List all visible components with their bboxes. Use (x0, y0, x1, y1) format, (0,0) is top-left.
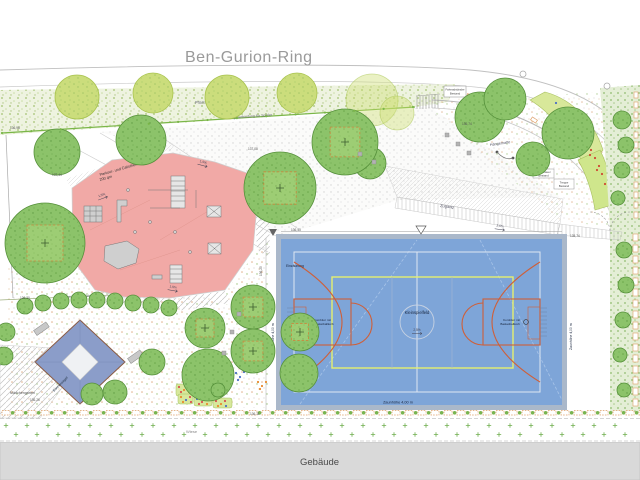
building-label: Gebäude (300, 457, 339, 468)
elevation-label: 137,44 (52, 173, 62, 177)
elevation-label: 136,30 (20, 296, 30, 300)
enclosure-label: Einzäunung (286, 264, 304, 268)
lawn-label: Wiese (186, 429, 198, 434)
svg-text:Bestand: Bestand (559, 184, 570, 188)
site-plan-canvas: Ben-Gurion-Ring Pflanzung Bestand Wegeve… (0, 0, 640, 480)
site-plan-svg: Ben-Gurion-Ring Pflanzung Bestand Wegeve… (0, 0, 640, 480)
girls-garden-label: Mädchengarten (10, 391, 35, 395)
bush (613, 111, 631, 129)
tree-new (231, 329, 275, 373)
bush (615, 312, 631, 328)
fence-label-bottom: Zaunhöhe 4,00 m (383, 401, 413, 405)
stairs-note-box: Treppe Bestand (554, 179, 574, 189)
bike-rack-label-2: Bestand (450, 91, 461, 95)
svg-text:2,5%: 2,5% (413, 328, 420, 332)
bush (618, 277, 634, 293)
tree (116, 115, 166, 165)
elevation-label: 136,43 (291, 228, 301, 232)
bush (614, 162, 630, 178)
tree (182, 349, 234, 401)
bush (71, 292, 87, 308)
tree (34, 129, 80, 175)
elevation-label: 136,74 (462, 122, 472, 126)
goal-right-label-2: Basketballkorb (500, 322, 520, 326)
elevation-label: 135,74 (570, 234, 580, 238)
tree (484, 78, 526, 120)
bush (0, 323, 15, 341)
street-label: Ben-Gurion-Ring (185, 49, 313, 66)
tree-new (244, 152, 316, 224)
tree-new (185, 308, 225, 348)
bush (618, 137, 634, 153)
bush (53, 293, 69, 309)
bush (125, 295, 141, 311)
bush (139, 349, 165, 375)
tree-new (231, 285, 275, 329)
bush (17, 298, 33, 314)
elevation-label: 136,25 (259, 266, 263, 276)
bush (211, 383, 225, 397)
tree (516, 142, 550, 176)
bush (89, 292, 105, 308)
elevation-label: 136,11 (250, 412, 260, 416)
bush (143, 297, 159, 313)
bush (35, 295, 51, 311)
bush (617, 383, 631, 397)
elevation-label: 136,98 (10, 126, 20, 130)
bush (616, 242, 632, 258)
bush (107, 293, 123, 309)
light-tree (133, 73, 173, 113)
fence-label-right: Zaunhöhe 4,00 m (569, 323, 573, 350)
bush (613, 348, 627, 362)
tree-new (312, 109, 378, 175)
light-tree (55, 75, 99, 119)
bush (611, 191, 625, 205)
tree-new (281, 313, 319, 351)
tree (280, 354, 318, 392)
ghost-tree (380, 96, 414, 130)
tree-new (5, 203, 85, 283)
bush (161, 300, 177, 316)
light-tree (205, 75, 249, 119)
lamp-icon (604, 83, 610, 89)
flower-bed (178, 394, 193, 404)
lamp-icon (520, 71, 526, 77)
court-center-label: Kleinspielfeld (405, 310, 430, 315)
bush (103, 380, 127, 404)
bush (81, 383, 103, 405)
elevation-label: 137,08 (248, 147, 258, 151)
light-tree (277, 73, 317, 113)
tree (542, 107, 594, 159)
elevation-label: 136,26 (30, 398, 40, 402)
